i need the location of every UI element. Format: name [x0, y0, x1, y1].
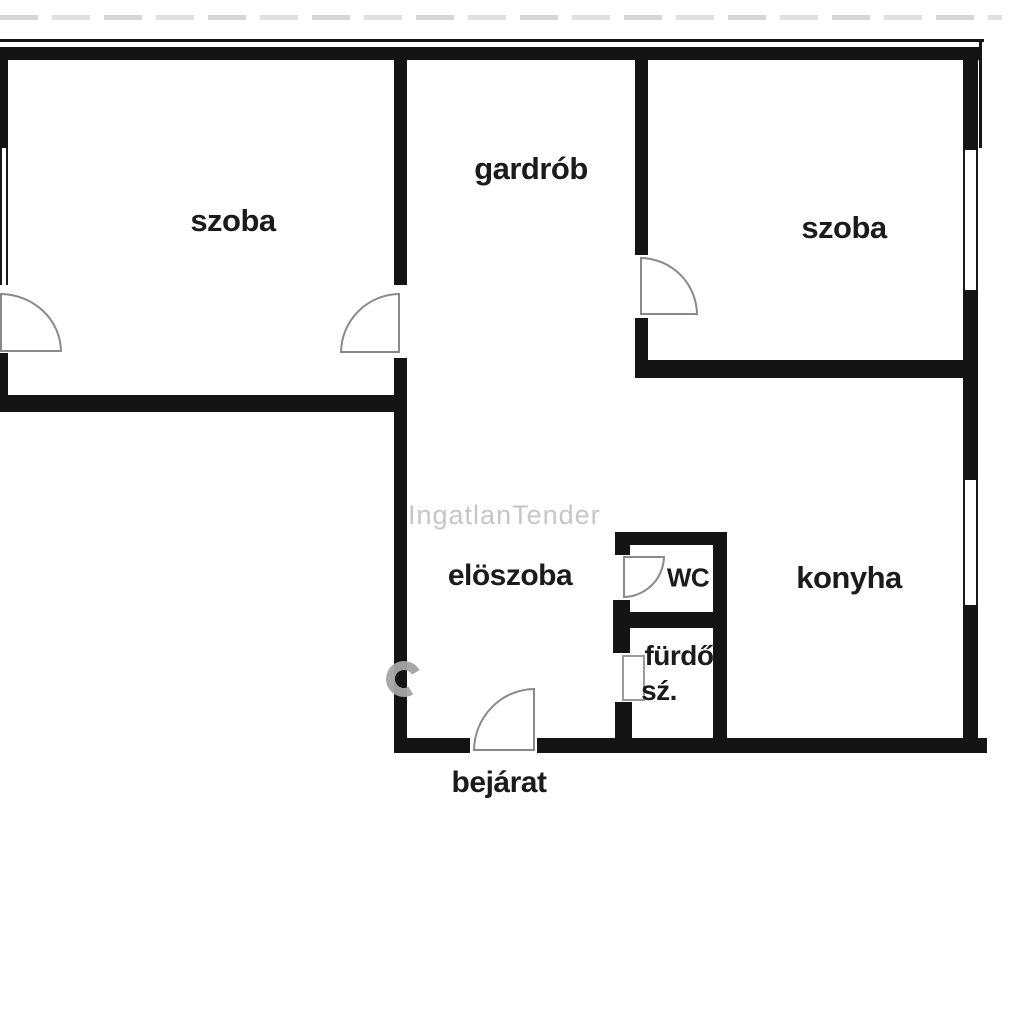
label-wc: WC	[667, 563, 709, 594]
window-right-konyha	[963, 480, 978, 605]
wall-top	[0, 47, 979, 60]
label-furdo-sz: sź.	[641, 675, 677, 707]
wall-wc-east	[713, 532, 727, 753]
label-szoba-left: szoba	[190, 203, 275, 239]
window-right-szoba	[963, 150, 978, 290]
wall-szoba1-east-upper	[394, 47, 407, 285]
label-bejarat: bejárat	[452, 766, 547, 800]
wall-left-lower-stub	[0, 353, 8, 395]
wall-right-mid	[963, 290, 978, 480]
label-konyha: konyha	[796, 560, 902, 596]
door-gardrob-to-szoba2	[640, 257, 698, 315]
wall-wc-west-lower	[615, 702, 632, 753]
door-wc	[623, 556, 665, 598]
wall-szoba1-east-stub	[394, 358, 407, 395]
wall-wc-top	[615, 532, 727, 545]
wall-szoba2-bottom	[635, 360, 978, 378]
wall-bottom-left	[394, 738, 470, 753]
outer-right-line	[979, 42, 982, 148]
outer-top-line	[0, 39, 984, 42]
wall-bottom-right	[537, 738, 987, 753]
floor-plan: szoba gardrób szoba elöszoba WC konyha f…	[0, 0, 1024, 1024]
label-eloszoba: elöszoba	[448, 559, 572, 593]
wall-szoba1-bottom	[0, 395, 407, 412]
wall-left-upper	[0, 47, 8, 148]
watermark-text: IngatlanTender	[408, 500, 601, 531]
wall-wc-west-upper	[615, 532, 630, 555]
top-artifact-strip	[0, 15, 1002, 20]
wall-wc-furdo-divider	[615, 612, 727, 628]
door-szoba1-to-eloszoba	[340, 293, 400, 353]
label-szoba-right: szoba	[801, 210, 886, 246]
door-bejarat	[473, 688, 535, 751]
door-szoba1-left-wall	[0, 293, 62, 352]
wall-gardrob-east-upper	[635, 47, 648, 255]
label-furdo: fürdő	[644, 640, 713, 672]
window-left	[0, 148, 8, 285]
wall-right-upper	[963, 47, 978, 150]
wall-right-lower	[963, 605, 978, 753]
label-gardrob: gardrób	[474, 151, 588, 187]
wall-eloszoba-west	[394, 412, 407, 753]
watermark-logo-ring	[382, 657, 426, 701]
